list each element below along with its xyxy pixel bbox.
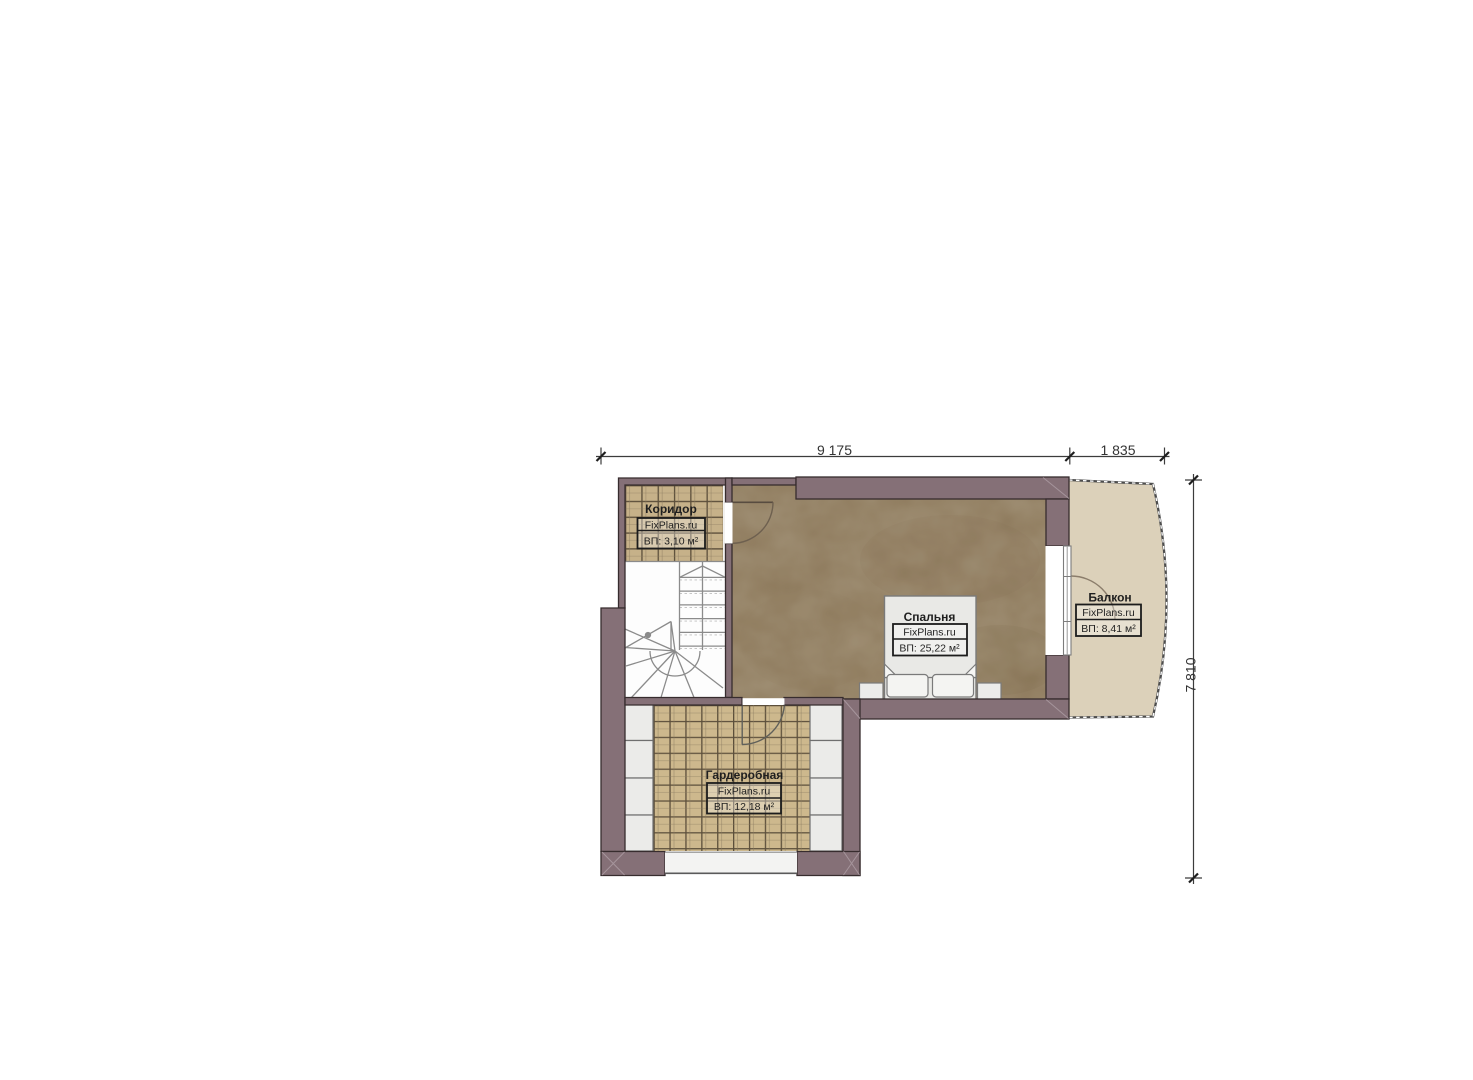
svg-text:FixPlans.ru: FixPlans.ru bbox=[903, 627, 956, 639]
svg-text:ВП: 3,10 м²: ВП: 3,10 м² bbox=[644, 536, 699, 548]
svg-text:Балкон: Балкон bbox=[1088, 591, 1131, 605]
svg-text:7 810: 7 810 bbox=[1183, 657, 1199, 692]
svg-text:Спальня: Спальня bbox=[904, 610, 956, 624]
svg-text:ВП: 8,41 м²: ВП: 8,41 м² bbox=[1081, 623, 1136, 635]
svg-text:FixPlans.ru: FixPlans.ru bbox=[718, 786, 771, 798]
svg-text:Гардеробная: Гардеробная bbox=[706, 768, 784, 782]
svg-text:9 175: 9 175 bbox=[817, 442, 852, 458]
svg-text:FixPlans.ru: FixPlans.ru bbox=[645, 520, 698, 532]
svg-text:Коридор: Коридор bbox=[645, 502, 697, 516]
svg-text:1 835: 1 835 bbox=[1100, 442, 1135, 458]
svg-text:FixPlans.ru: FixPlans.ru bbox=[1082, 607, 1135, 619]
svg-text:ВП: 12,18 м²: ВП: 12,18 м² bbox=[714, 801, 775, 813]
svg-text:ВП: 25,22 м²: ВП: 25,22 м² bbox=[899, 643, 960, 655]
